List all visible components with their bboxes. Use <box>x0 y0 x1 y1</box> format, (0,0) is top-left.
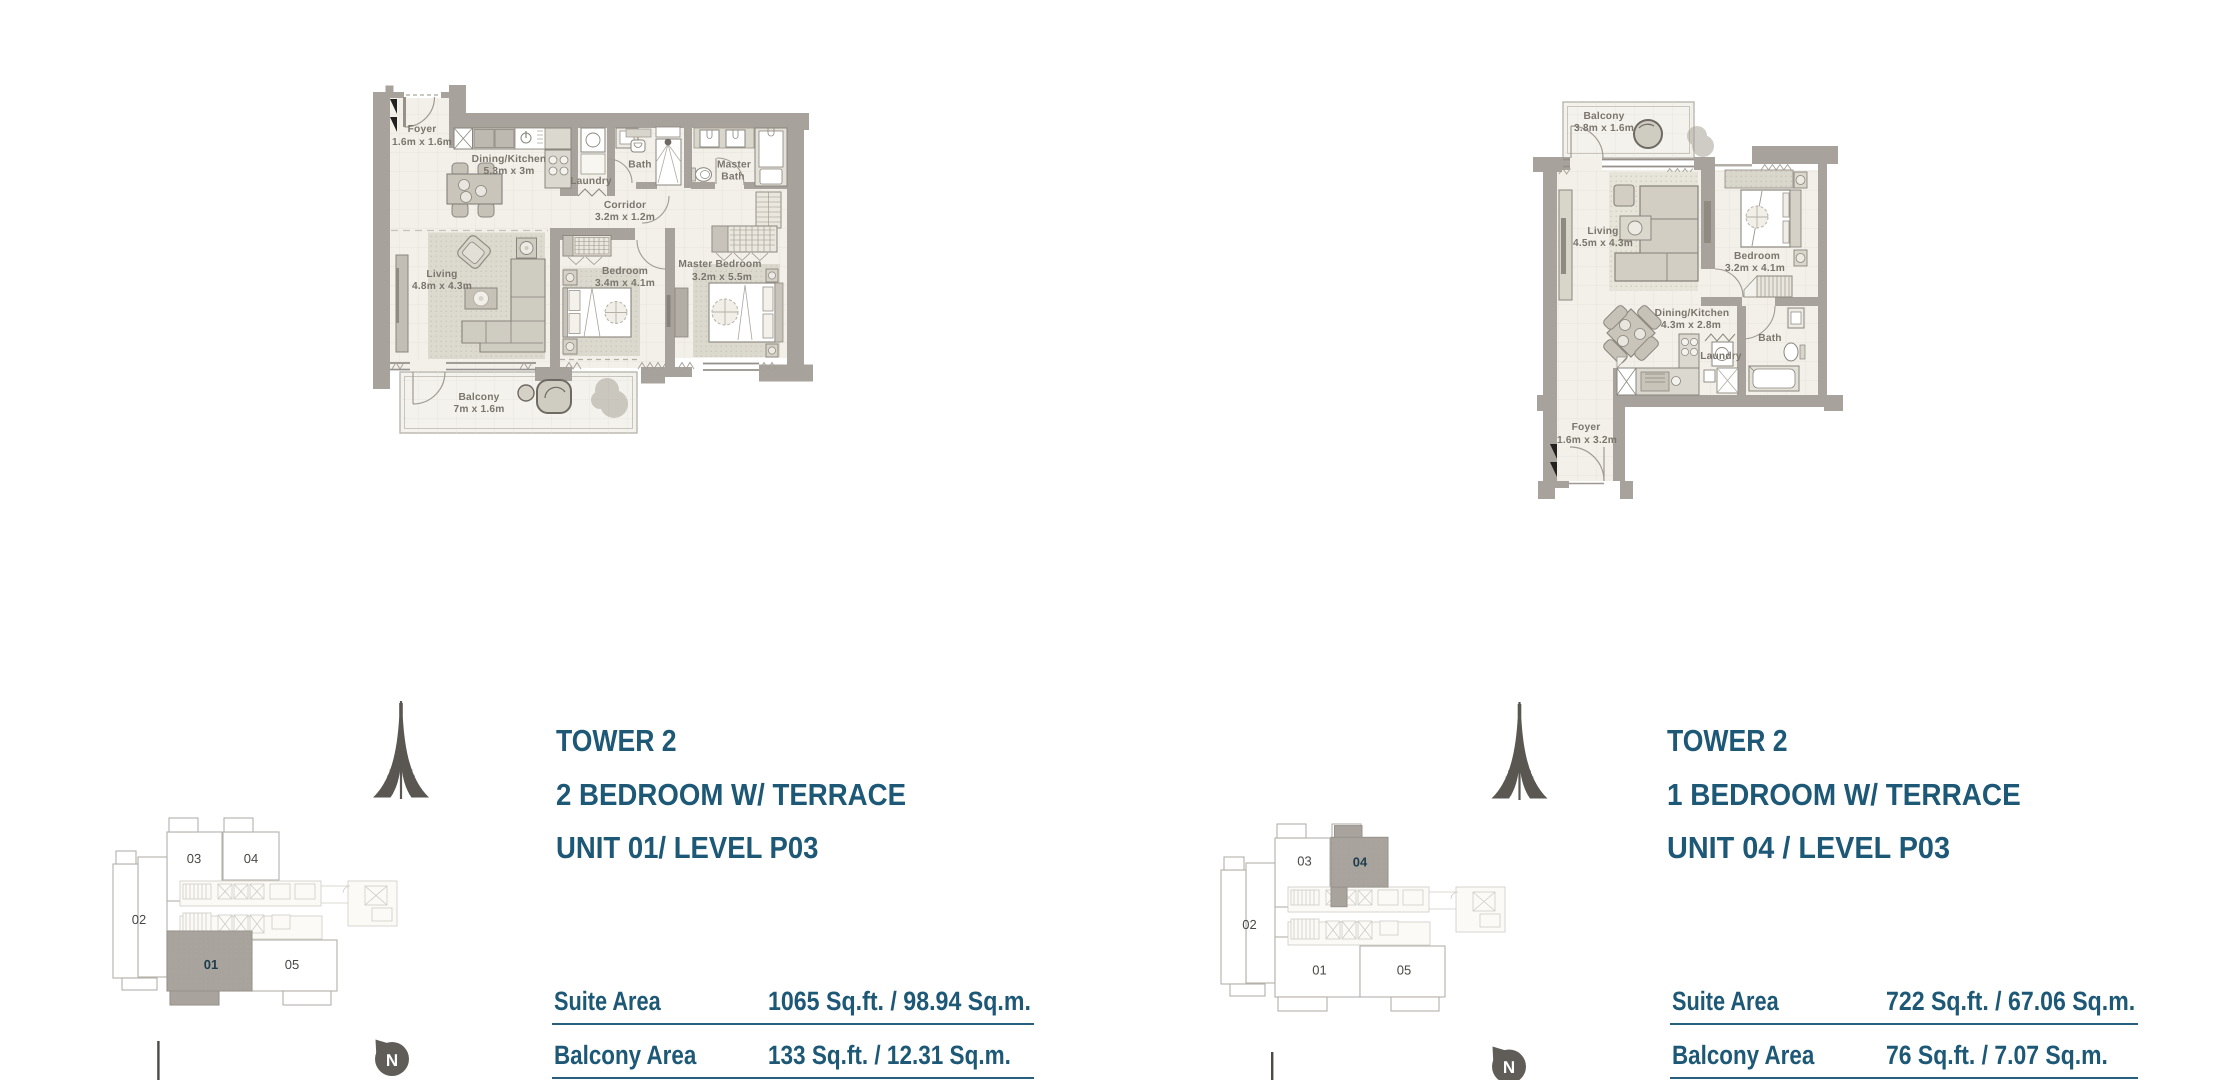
svg-text:Laundry: Laundry <box>1700 351 1742 362</box>
svg-text:4.5m x 4.3m: 4.5m x 4.3m <box>1573 238 1633 249</box>
svg-text:Bath: Bath <box>628 160 651 171</box>
svg-text:01: 01 <box>1312 963 1326 978</box>
svg-text:Bedroom: Bedroom <box>602 266 648 277</box>
svg-text:03: 03 <box>1297 854 1311 869</box>
svg-text:3.8m x 1.6m: 3.8m x 1.6m <box>1574 123 1634 134</box>
svg-text:04: 04 <box>244 851 258 866</box>
svg-text:3.2m x 4.1m: 3.2m x 4.1m <box>1725 263 1785 274</box>
svg-text:Living: Living <box>426 269 457 280</box>
svg-text:Dining/Kitchen: Dining/Kitchen <box>472 154 547 165</box>
svg-text:3.2m x 1.2m: 3.2m x 1.2m <box>595 212 655 223</box>
svg-text:01: 01 <box>204 957 218 972</box>
svg-text:1.6m x 3.2m: 1.6m x 3.2m <box>1557 435 1617 446</box>
svg-text:1.6m x 1.6m: 1.6m x 1.6m <box>392 137 452 148</box>
svg-text:02: 02 <box>1242 917 1256 932</box>
svg-text:Foyer: Foyer <box>408 124 437 135</box>
svg-text:Foyer: Foyer <box>1572 422 1601 433</box>
svg-text:3.2m x 5.5m: 3.2m x 5.5m <box>692 272 752 283</box>
svg-text:Bath: Bath <box>721 172 744 183</box>
svg-text:N: N <box>1503 1058 1515 1077</box>
svg-text:Balcony: Balcony <box>1583 111 1624 122</box>
svg-text:N: N <box>386 1051 398 1070</box>
svg-text:Master Bedroom: Master Bedroom <box>678 259 761 270</box>
svg-text:02: 02 <box>132 912 146 927</box>
svg-text:Balcony: Balcony <box>458 392 499 403</box>
svg-text:Dining/Kitchen: Dining/Kitchen <box>1655 308 1730 319</box>
svg-text:3.4m x 4.1m: 3.4m x 4.1m <box>595 278 655 289</box>
svg-text:05: 05 <box>1397 963 1411 978</box>
svg-text:05: 05 <box>285 957 299 972</box>
svg-text:Living: Living <box>1587 226 1618 237</box>
svg-text:Bath: Bath <box>1758 333 1781 344</box>
svg-text:Master: Master <box>717 160 751 171</box>
svg-text:7m x 1.6m: 7m x 1.6m <box>453 404 504 415</box>
svg-text:04: 04 <box>1353 855 1368 870</box>
svg-text:Bedroom: Bedroom <box>1734 251 1780 262</box>
svg-text:4.3m x 2.8m: 4.3m x 2.8m <box>1661 320 1721 331</box>
svg-text:Laundry: Laundry <box>570 176 612 187</box>
svg-text:5.3m x 3m: 5.3m x 3m <box>483 166 534 177</box>
svg-text:03: 03 <box>187 851 201 866</box>
svg-text:Corridor: Corridor <box>604 200 646 211</box>
svg-text:4.8m x 4.3m: 4.8m x 4.3m <box>412 281 472 292</box>
